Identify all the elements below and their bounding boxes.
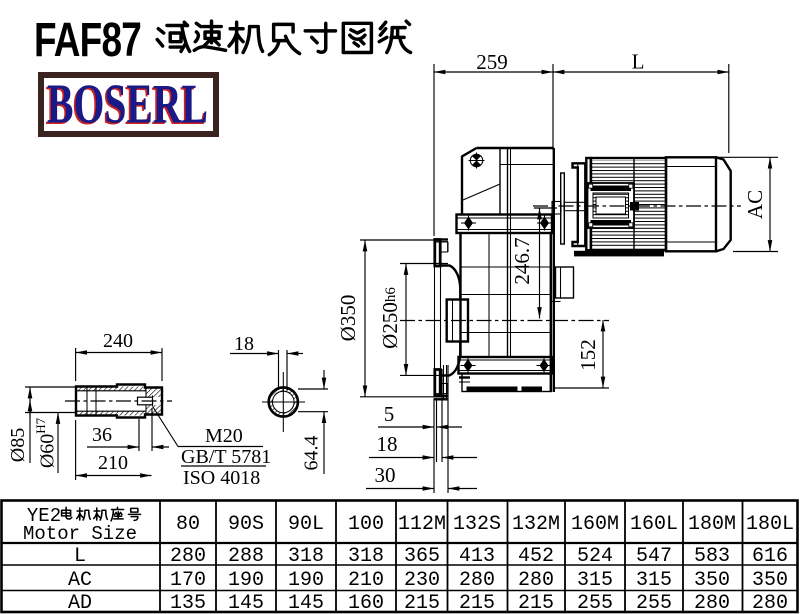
svg-text:Ø350: Ø350 (336, 295, 360, 342)
svg-text:246.7: 246.7 (510, 237, 534, 284)
svg-text:210: 210 (348, 569, 384, 592)
svg-text:112M: 112M (398, 513, 446, 536)
svg-text:315: 315 (577, 569, 613, 592)
svg-text:583: 583 (694, 545, 730, 568)
svg-text:AC: AC (743, 190, 767, 219)
svg-text:318: 318 (288, 545, 324, 568)
svg-text:AC: AC (68, 569, 92, 592)
svg-text:280: 280 (518, 569, 554, 592)
svg-text:160M: 160M (571, 513, 619, 536)
svg-text:152: 152 (576, 339, 600, 371)
svg-text:452: 452 (518, 545, 554, 568)
svg-text:30: 30 (375, 463, 396, 487)
svg-text:210: 210 (98, 452, 128, 474)
svg-text:365: 365 (404, 545, 440, 568)
svg-text:L: L (632, 50, 645, 74)
svg-text:Ø85: Ø85 (7, 428, 29, 462)
svg-text:240: 240 (103, 330, 133, 352)
svg-text:280: 280 (170, 545, 206, 568)
svg-text:145: 145 (288, 592, 324, 614)
svg-text:616: 616 (752, 545, 788, 568)
svg-text:547: 547 (636, 545, 672, 568)
svg-text:135: 135 (170, 592, 206, 614)
svg-text:215: 215 (518, 592, 554, 614)
svg-text:230: 230 (404, 569, 440, 592)
svg-text:64.4: 64.4 (301, 436, 323, 471)
svg-text:215: 215 (404, 592, 440, 614)
svg-text:ISO 4018: ISO 4018 (183, 467, 260, 489)
svg-text:280: 280 (752, 592, 788, 614)
svg-text:255: 255 (636, 592, 672, 614)
svg-text:132M: 132M (512, 513, 560, 536)
svg-text:350: 350 (694, 569, 730, 592)
svg-text:315: 315 (636, 569, 672, 592)
svg-text:190: 190 (228, 569, 264, 592)
svg-text:259: 259 (476, 50, 508, 74)
svg-text:145: 145 (228, 592, 264, 614)
svg-text:190: 190 (288, 569, 324, 592)
svg-text:280: 280 (694, 592, 730, 614)
svg-text:90L: 90L (288, 513, 324, 536)
svg-text:AD: AD (68, 592, 92, 614)
svg-text:350: 350 (752, 569, 788, 592)
svg-text:180M: 180M (688, 513, 736, 536)
svg-text:288: 288 (228, 545, 264, 568)
svg-text:100: 100 (348, 513, 384, 536)
svg-text:18: 18 (377, 432, 398, 456)
svg-text:255: 255 (577, 592, 613, 614)
svg-text:GB/T 5781: GB/T 5781 (181, 446, 271, 468)
svg-text:18: 18 (234, 333, 254, 355)
svg-text:180L: 180L (746, 513, 794, 536)
svg-text:L: L (74, 545, 86, 568)
svg-text:215: 215 (459, 592, 495, 614)
svg-text:160L: 160L (630, 513, 678, 536)
svg-text:132S: 132S (453, 513, 501, 536)
svg-text:318: 318 (348, 545, 384, 568)
svg-text:36: 36 (92, 424, 112, 446)
svg-text:170: 170 (170, 569, 206, 592)
svg-text:M20: M20 (205, 425, 243, 447)
svg-text:413: 413 (459, 545, 495, 568)
svg-text:5: 5 (384, 402, 395, 426)
svg-text:80: 80 (176, 513, 200, 536)
svg-text:Motor Size: Motor Size (23, 523, 137, 545)
svg-text:280: 280 (459, 569, 495, 592)
svg-text:160: 160 (348, 592, 384, 614)
svg-text:524: 524 (577, 545, 613, 568)
svg-text:90S: 90S (228, 513, 264, 536)
svg-text:FAF87: FAF87 (34, 13, 141, 67)
svg-text:BOSERL: BOSERL (47, 74, 208, 136)
